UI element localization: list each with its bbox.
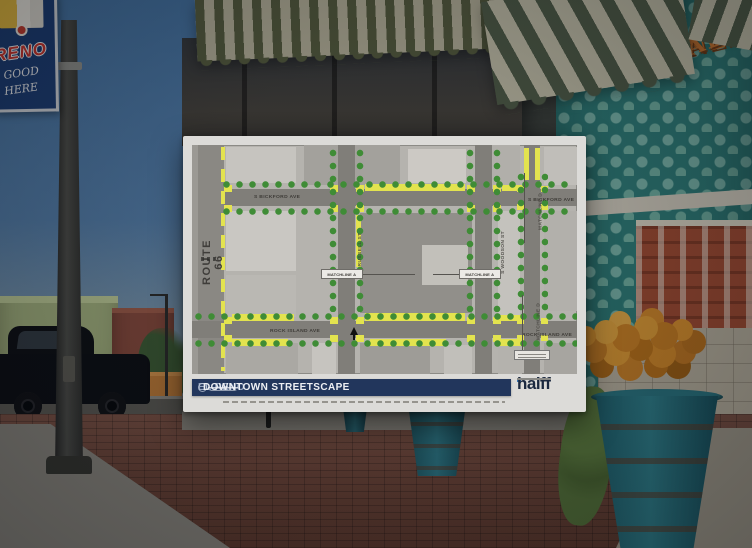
map-building bbox=[226, 147, 296, 183]
mid-street-name-label: RUSSELL ST bbox=[357, 233, 363, 267]
route-66-label: ROUTE 66 bbox=[201, 231, 225, 293]
street-trees-column bbox=[329, 147, 337, 312]
street-trees-column bbox=[493, 147, 501, 312]
street-trees-row bbox=[194, 312, 577, 321]
north-arrow-icon bbox=[350, 327, 358, 335]
matchline-d-line-bottom bbox=[522, 295, 523, 350]
rock-island-ave-label-right: ROCK ISLAND AVE bbox=[522, 332, 572, 338]
halff-logo: halff bbox=[517, 376, 579, 402]
map-building bbox=[226, 211, 296, 271]
matchline-a-line-left bbox=[363, 274, 415, 275]
rock-island-ave-label-left: ROCK ISLAND AVE bbox=[270, 328, 320, 334]
street-trees-column bbox=[517, 171, 524, 313]
bickford-ave-label-right: S BICKFORD AVE bbox=[528, 197, 574, 203]
street-trees-column bbox=[466, 147, 474, 312]
halff-address-line bbox=[517, 378, 544, 380]
city-seal-icon bbox=[198, 383, 207, 392]
map-building bbox=[408, 149, 466, 183]
matchline-d-label-top: MATCHLINE D bbox=[537, 193, 543, 230]
signature-logo-icon bbox=[208, 384, 238, 392]
matchline-a-box-right: MATCHLINE A bbox=[459, 269, 501, 279]
streetscape-plan-board: ROUTE 66 S BICKFORD AVE S BICKFORD AVE R… bbox=[183, 136, 586, 412]
poster-title-bar: EL RENO DOWNTOWN STREETSCAPE bbox=[192, 379, 511, 396]
label-box-line bbox=[518, 357, 546, 358]
aerial-plan-map: ROUTE 66 S BICKFORD AVE S BICKFORD AVE R… bbox=[192, 145, 577, 374]
matchline-a-box-left: MATCHLINE A bbox=[321, 269, 363, 279]
matchline-d-line-top bbox=[524, 173, 525, 243]
map-building bbox=[544, 211, 577, 311]
right-street-name-label: S WOODSON ST bbox=[500, 231, 506, 274]
bickford-ave-label-left: S BICKFORD AVE bbox=[254, 194, 300, 200]
lane-arrow-marks bbox=[201, 257, 215, 261]
matchline-a-line-right bbox=[433, 274, 459, 275]
street-trees-column bbox=[356, 147, 364, 312]
curb-strip-vertical bbox=[535, 148, 540, 180]
map-parking-lot bbox=[226, 275, 296, 317]
street-photo-scene: BRONZE SEAL RENO S GOOD E HERE bbox=[0, 0, 752, 548]
matchline-d-label-bottom: MATCHLINE D bbox=[535, 303, 541, 340]
poster-fine-print-line bbox=[223, 401, 505, 403]
north-arrow-stem bbox=[353, 335, 355, 340]
map-building bbox=[444, 345, 472, 374]
small-label-box bbox=[514, 350, 550, 360]
map-building bbox=[422, 245, 468, 285]
street-trees-row bbox=[194, 339, 577, 348]
label-box-line bbox=[518, 354, 546, 355]
